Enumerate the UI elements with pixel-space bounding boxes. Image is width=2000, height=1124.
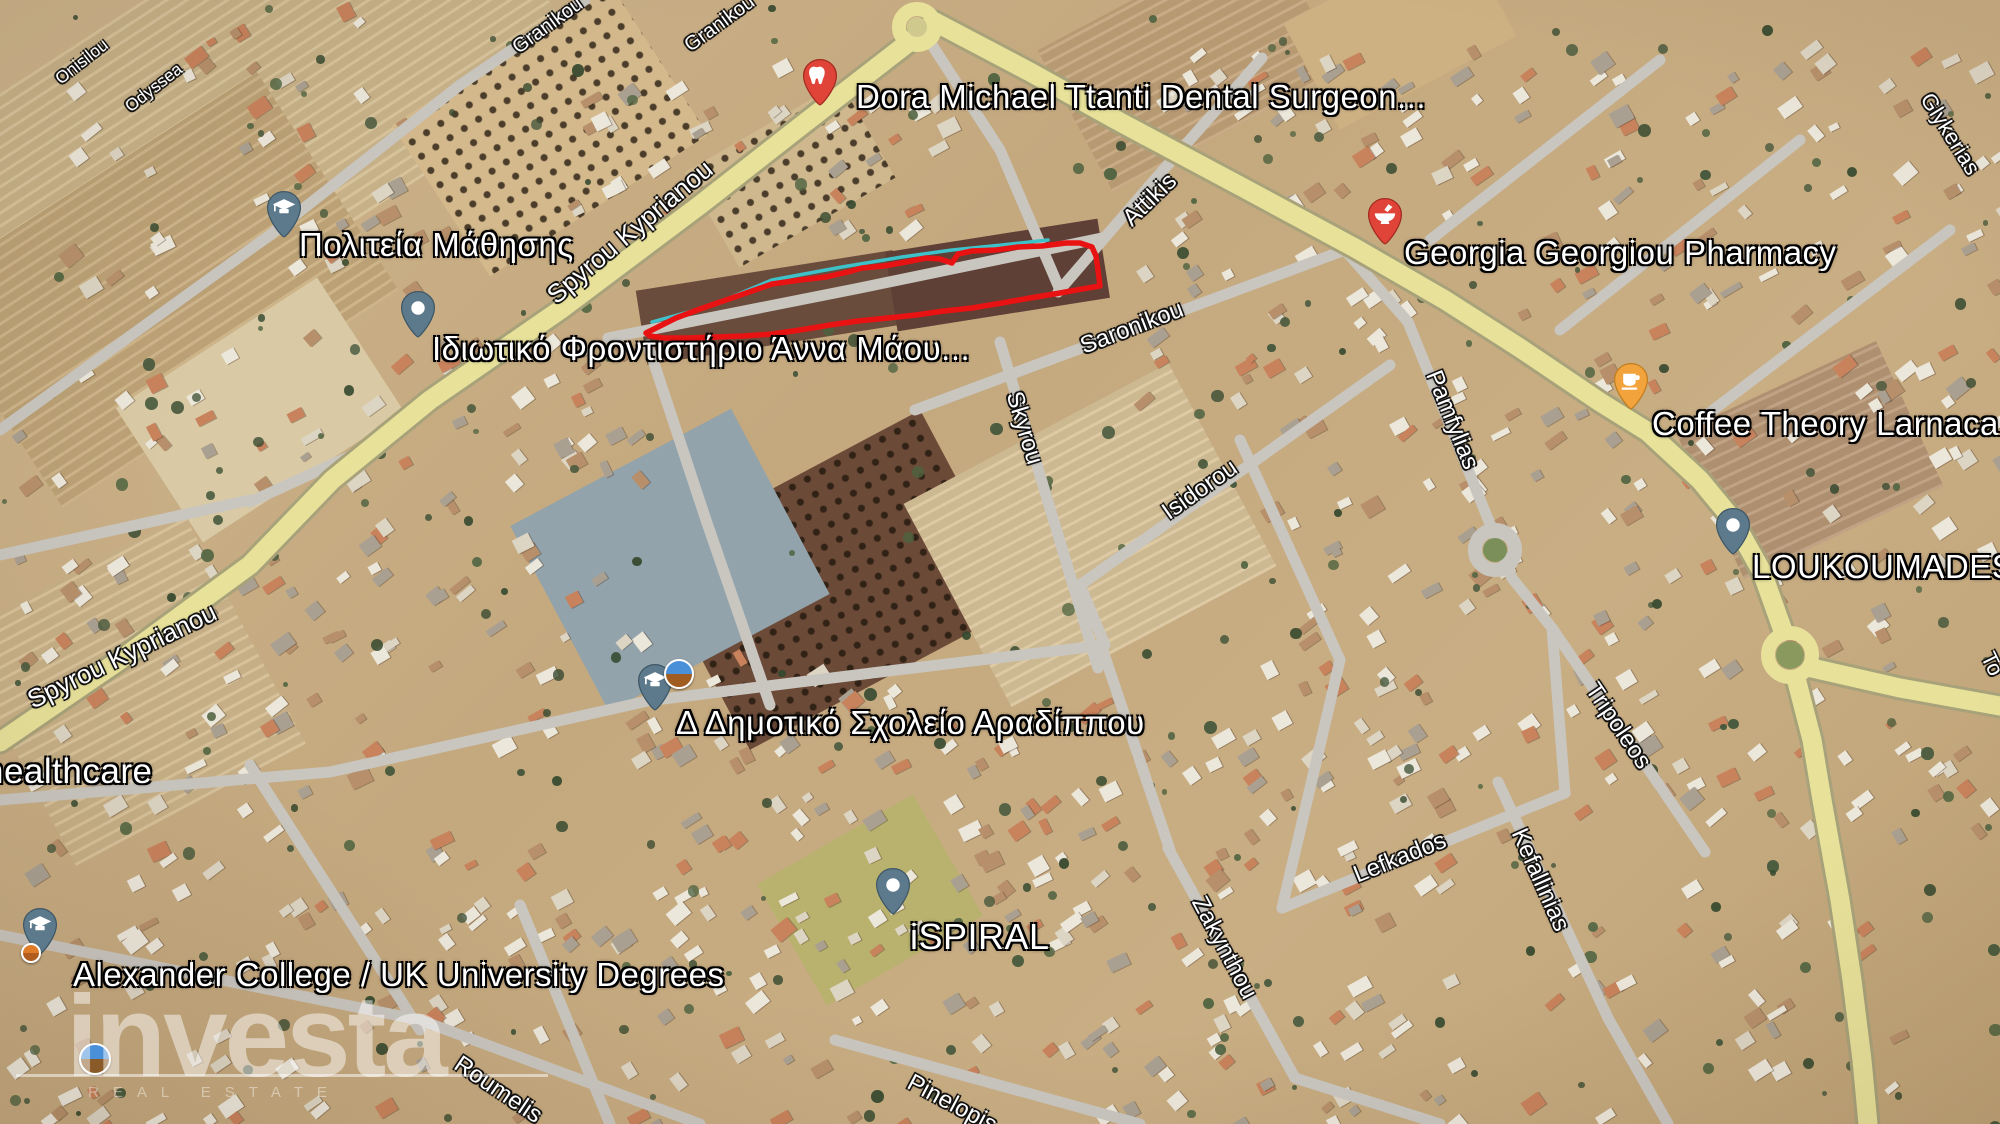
- school-logo-icon[interactable]: [664, 659, 694, 689]
- street-road: [1282, 660, 1340, 908]
- street-road: [1102, 648, 1170, 850]
- dimotiko-scholeio-aradippou-label[interactable]: Δ Δημοτικό Σχολείο Αραδίππου: [676, 704, 1145, 742]
- college-dot-icon[interactable]: [21, 943, 41, 963]
- idiotiko-frontistirio-label[interactable]: Ιδιωτικό Φροντιστήριο Άννα Μάου...: [432, 330, 970, 368]
- street-road: [1430, 60, 1660, 240]
- georgia-georgiou-pharmacy-pin[interactable]: [1366, 197, 1404, 247]
- georgia-georgiou-pharmacy-label[interactable]: Georgia Georgiou Pharmacy: [1404, 234, 1837, 272]
- politeia-mathisis-pin-icon: [265, 190, 303, 240]
- ispiral-pin-icon: [874, 867, 912, 917]
- highway-road: [1797, 682, 1868, 1124]
- street-road: [520, 905, 610, 1124]
- satellite-map[interactable]: Spyrou KyprianouSpyrou KyprianouAttikisS…: [0, 0, 2000, 1124]
- dental-surgeon-pin-icon: [801, 58, 839, 108]
- coffee-theory-larnaca-pin-icon: [1612, 362, 1650, 412]
- loukoumades-label[interactable]: LOUKOUMADES: [1752, 548, 2000, 586]
- roundabout-center: [907, 17, 927, 37]
- ispiral-pin[interactable]: [874, 867, 912, 917]
- politeia-mathisis-label[interactable]: Πολιτεία Μάθησης: [299, 226, 574, 264]
- corner-logo-icon[interactable]: [79, 1043, 111, 1075]
- loukoumades-pin[interactable]: [1714, 507, 1752, 557]
- street-road: [1295, 1078, 1440, 1124]
- ispiral-label[interactable]: iSPIRAL: [910, 916, 1050, 958]
- alexander-college-label[interactable]: Alexander College / UK University Degree…: [73, 956, 724, 994]
- coffee-theory-larnaca-pin[interactable]: [1612, 362, 1650, 412]
- street-road: [1608, 1018, 1668, 1124]
- roundabout-center: [1483, 538, 1507, 562]
- loukoumades-pin-icon: [1714, 507, 1752, 557]
- street-road: [1240, 440, 1340, 660]
- street-road: [0, 500, 250, 555]
- street-road: [655, 645, 1105, 700]
- dental-surgeon-label[interactable]: Dora Michael Ttanti Dental Surgeon...: [856, 78, 1426, 116]
- healthcare-label[interactable]: healthcare: [0, 752, 152, 792]
- street-road: [648, 345, 770, 705]
- georgia-georgiou-pharmacy-pin-icon: [1366, 197, 1404, 247]
- roundabout-center: [1776, 641, 1804, 669]
- street-road: [1512, 578, 1552, 628]
- politeia-mathisis-pin[interactable]: [265, 190, 303, 240]
- coffee-theory-larnaca-label[interactable]: Coffee Theory Larnaca: [1652, 405, 1999, 443]
- dental-surgeon-pin[interactable]: [801, 58, 839, 108]
